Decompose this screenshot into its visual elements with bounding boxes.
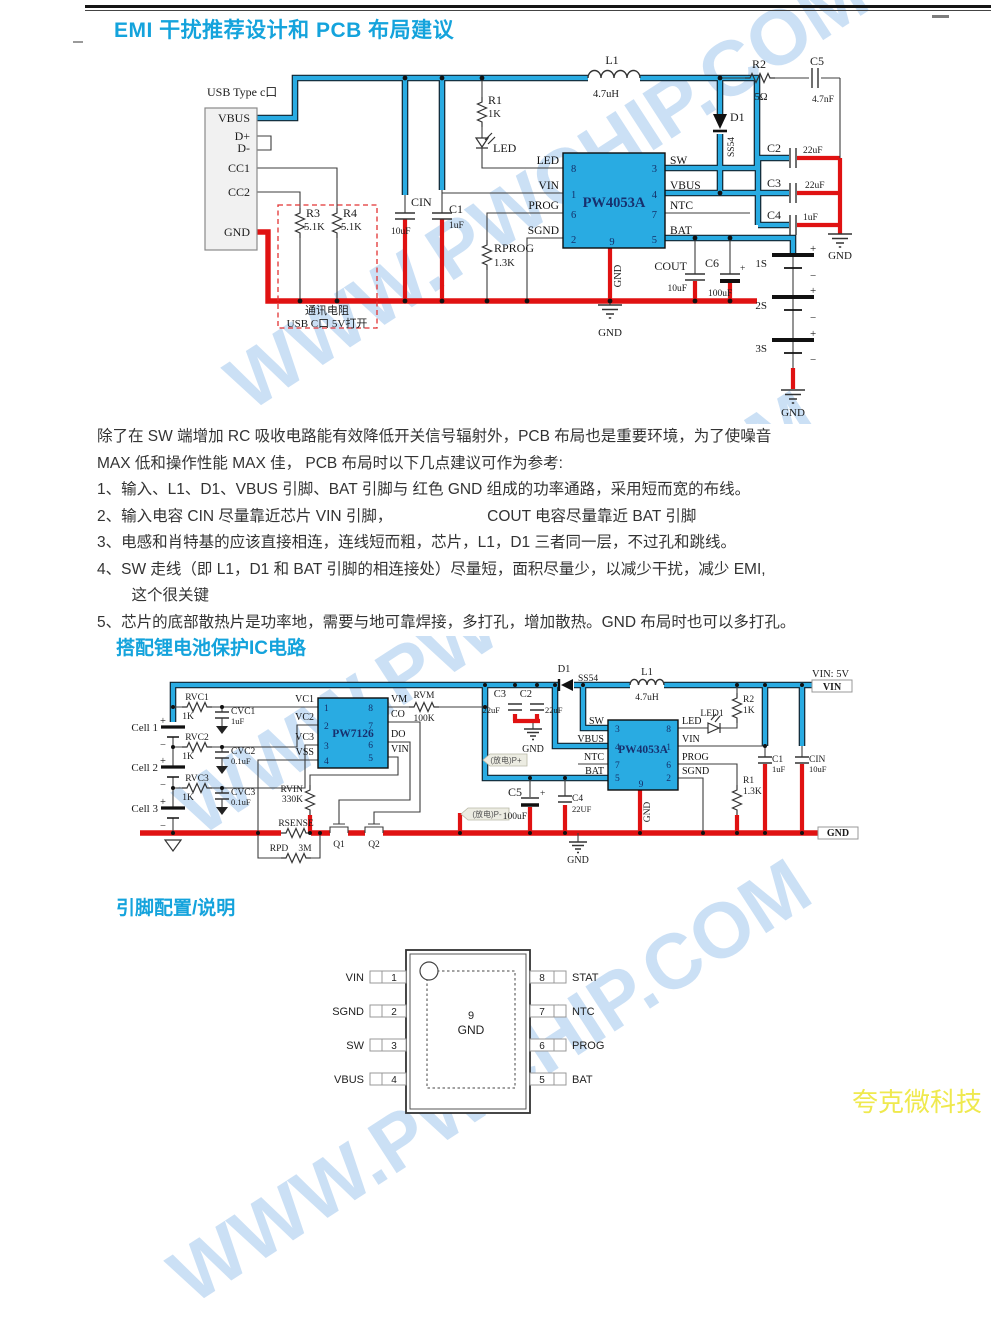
pin-label-prog-c2: PROG (682, 752, 709, 763)
pin-number-2: 2 (571, 235, 576, 246)
value-cout: 10uF (667, 284, 687, 294)
brand-logo-text: 夸克微科技 (852, 1082, 982, 1119)
pin9-gnd-rotated-c2: GND (643, 802, 653, 823)
value-r1: 1K (488, 109, 501, 120)
label-l1-c2: L1 (641, 667, 653, 678)
pin2-number: 2 (391, 1007, 397, 1018)
pin-label-led-c2: LED (682, 716, 701, 727)
pw4053a2-pin-3: 3 (615, 725, 620, 735)
value-r1-c2: 1.3K (743, 787, 762, 797)
top-border-line-thin (85, 10, 991, 11)
gnd-label-caps: GND (522, 744, 544, 755)
value-c6: 100uF (708, 289, 732, 299)
usb-pin-dminus: D- (237, 141, 250, 155)
value-c4: 1uF (803, 213, 818, 223)
pin-number-4: 4 (652, 190, 658, 201)
pw4053a2-pin-7: 7 (615, 761, 620, 771)
datasheet-page: { "header": { "title": "EMI 干扰推荐设计和 PCB … (0, 0, 991, 1115)
notes-item-2: 2、输入电容 CIN 尽量靠近芯片 VIN 引脚， COUT 电容尽量靠近 BA… (97, 504, 975, 531)
label-c1-c2: C1 (772, 755, 783, 765)
label-q1: Q1 (333, 840, 345, 850)
cell1-minus: − (160, 740, 166, 751)
cell2-plus: + (160, 756, 166, 767)
cell1-minus: − (810, 270, 816, 282)
pin1-label: VIN (346, 972, 364, 984)
label-r4: R4 (343, 206, 357, 220)
pin4-label: VBUS (334, 1074, 364, 1086)
pin-number-7: 7 (652, 210, 657, 221)
pin1-marker-circle (420, 962, 438, 980)
chip-pw4053a-2 (608, 720, 678, 790)
value-r3: 5.1K (304, 222, 325, 233)
pin2-label: SGND (332, 1006, 364, 1018)
notes-item-3: 3、电感和肖特基的应该直接相连，连线短而粗，芯片，L1，D1 三者同一层，不过孔… (97, 530, 975, 557)
pin-label-sgnd-c2: SGND (682, 766, 709, 777)
value-c4-c2: 22UF (572, 804, 592, 814)
label-c3-c2: C3 (494, 689, 506, 700)
c6-polarity-plus: + (740, 264, 745, 274)
vin-terminal-box (812, 680, 852, 692)
chip-name-pw4053a-2: PW4053A (618, 744, 669, 756)
battery-3s-label: 3S (755, 343, 767, 355)
pin-label-vbus-c2: VBUS (577, 734, 604, 745)
value-rpd: 3M (298, 844, 312, 854)
value-c2-c2: 22uF (545, 705, 563, 715)
label-cell3: Cell 3 (131, 803, 158, 815)
notes-item-5: 5、芯片的底部散热片是功率地，需要与地可靠焊接，多打孔，增加散热。GND 布局时… (97, 610, 975, 637)
section-title-pin-config: 引脚配置/说明 (116, 893, 235, 920)
page-title: EMI 干扰推荐设计和 PCB 布局建议 (114, 14, 454, 44)
gnd-terminal-label: GND (827, 828, 849, 839)
pin-label-bat-c2: BAT (585, 766, 604, 777)
cell1-plus: + (160, 716, 166, 727)
pin-number-5: 5 (652, 235, 657, 246)
label-cvc1: CVC1 (231, 707, 256, 717)
pin4-number: 4 (391, 1075, 397, 1086)
label-cin: CIN (411, 195, 432, 209)
label-c4: C4 (767, 208, 781, 222)
pin-row-left-4: 4 VBUS (334, 1073, 406, 1086)
pin3-number: 3 (391, 1041, 397, 1052)
value-r2-c2: 1K (743, 706, 755, 716)
gnd-label-rail-c2: GND (567, 855, 589, 866)
margin-dash-left (73, 41, 83, 43)
usb-pin-dplus: D+ (235, 129, 251, 143)
cell3-plus: + (160, 797, 166, 808)
watermark-diagonal-3: WWW.PWCHIP.COM (153, 840, 826, 1321)
value-cin-c2: 10uF (809, 764, 827, 774)
battery-2s-label: 2S (755, 300, 767, 312)
cell2-plus: + (810, 285, 816, 297)
c5-polarity-plus: + (540, 789, 545, 799)
value-c3-c2: 22uF (483, 705, 501, 715)
led1-indicator (708, 714, 720, 733)
pin-label-vin-c2: VIN (682, 734, 700, 745)
label-r1-c2: R1 (743, 776, 754, 786)
top-border-line (85, 5, 991, 8)
pw4053a2-pin-2: 2 (666, 774, 671, 784)
label-c4-c2: C4 (572, 794, 583, 804)
notes-item-4: 4、SW 走线（即 L1，D1 和 BAT 引脚的相连接处）尽量短，面积尽量少，… (97, 557, 975, 584)
discharge-p-plus-callout (483, 754, 527, 766)
label-rvc1: RVC1 (185, 693, 209, 703)
label-r2-c2: R2 (743, 695, 754, 705)
pw4053a2-pin-4: 4 (615, 743, 620, 753)
pw4053a2-pin-5: 5 (615, 774, 620, 784)
pin-label-bat: BAT (670, 225, 692, 237)
usb-title-label: USB Type c口 (207, 85, 277, 99)
margin-dash-right (932, 15, 949, 18)
pw4053a2-pin-9: 9 (639, 780, 644, 790)
discharge-p-minus-callout (461, 808, 509, 820)
notes-intro-line1: 除了在 SW 端增加 RC 吸收电路能有效降低开关信号辐射外，PCB 布局也是重… (97, 424, 975, 451)
label-c2-c2: C2 (520, 689, 532, 700)
label-cell2: Cell 2 (131, 762, 158, 774)
section-title-protection-circuit: 搭配锂电池保护IC电路 (116, 633, 306, 660)
mosfet-q1 (330, 823, 348, 833)
pin8-number: 8 (539, 973, 545, 984)
value-d1: SS54 (727, 137, 737, 157)
notes-item-1: 1、输入、L1、D1、VBUS 引脚、BAT 引脚与 红色 GND 组成的功率通… (97, 477, 975, 504)
pin-label-vin-pw7126: VIN (391, 744, 409, 755)
cell2-minus: − (810, 312, 816, 324)
label-l1: L1 (605, 53, 618, 67)
notes-intro-line2: MAX 低和操作性能 MAX 佳， PCB 布局时以下几点建议可作为参考: (97, 451, 975, 478)
label-d1-c2: D1 (558, 664, 571, 675)
gnd-terminal-box (818, 827, 858, 839)
value-c3: 22uF (805, 181, 825, 191)
discharge-p-minus-label: (放电)P- (472, 809, 502, 819)
label-r3: R3 (306, 206, 320, 220)
schottky-diode-d1-c2 (559, 679, 573, 691)
value-l1-c2: 4.7uH (635, 693, 659, 703)
usb-pin-cc2: CC2 (228, 185, 250, 199)
vin-terminal-label: VIN (823, 682, 842, 693)
thermal-pad-number: 9 (468, 1010, 474, 1022)
label-led: LED (493, 141, 517, 155)
value-d1-c2: SS54 (578, 674, 598, 684)
gnd-label-mid: GND (598, 327, 622, 339)
vin-5v-annotation: VIN: 5V (812, 669, 849, 680)
pin3-label: SW (346, 1040, 364, 1052)
led-indicator (476, 133, 495, 148)
pin-row-left-3: 3 SW (346, 1039, 406, 1052)
notes-item-4b: 这个很关键 (97, 583, 975, 610)
cell3-minus: − (160, 821, 166, 832)
pin-number-9: 9 (609, 237, 614, 248)
pin-row-left-2: 2 SGND (332, 1005, 406, 1018)
label-led1: LED1 (700, 709, 723, 719)
label-cout: COUT (654, 259, 687, 273)
usb-pin-gnd: GND (224, 225, 250, 239)
value-r4: 5.1K (341, 222, 362, 233)
mosfet-q2 (365, 823, 383, 833)
cell3-minus: − (810, 354, 816, 366)
label-rvc2: RVC2 (185, 733, 209, 743)
gnd-label-right: GND (828, 250, 852, 262)
battery-1s-label: 1S (755, 258, 767, 270)
usb-pin-vbus: VBUS (218, 111, 250, 125)
pcb-layout-notes: 除了在 SW 端增加 RC 吸收电路能有效降低开关信号辐射外，PCB 布局也是重… (97, 424, 975, 636)
value-c2: 22uF (803, 146, 823, 156)
pw4053a2-pin-6: 6 (666, 761, 671, 771)
label-c2: C2 (767, 141, 781, 155)
label-c6: C6 (705, 256, 719, 270)
label-cin-c2: CIN (809, 755, 826, 765)
usb-type-c-connector (205, 108, 257, 250)
pin-label-ntc: NTC (670, 200, 693, 212)
pw4053a2-pin-8: 8 (666, 725, 671, 735)
earth-triangle (165, 840, 181, 851)
label-c5-c2: C5 (508, 785, 522, 799)
label-cell1: Cell 1 (131, 722, 158, 734)
pin-label-sw-c2: SW (589, 716, 605, 727)
pw7126-pin-5: 5 (368, 754, 373, 764)
pin9-gnd-rotated: GND (613, 264, 624, 287)
discharge-p-plus-label: (放电)P+ (490, 755, 522, 765)
pin-label-vbus: VBUS (670, 180, 701, 192)
pw4053a2-pin-1: 1 (666, 743, 671, 753)
label-rpd: RPD (270, 844, 289, 854)
cell1-plus: + (810, 243, 816, 255)
pin-label-ntc-c2: NTC (584, 752, 604, 763)
pin1-number: 1 (391, 973, 397, 984)
watermark-diagonal-1: WWW.PWCHIP.COM (210, 0, 883, 429)
label-rsense: RSENSE (278, 819, 314, 829)
label-r1: R1 (488, 93, 502, 107)
value-rvc1: 1K (182, 712, 194, 722)
value-c5-c2: 100uF (503, 812, 527, 822)
label-c3: C3 (767, 176, 781, 190)
label-q2: Q2 (368, 840, 380, 850)
usb-pin-cc1: CC1 (228, 161, 250, 175)
value-c1-c2: 1uF (772, 764, 786, 774)
value-c5: 4.7nF (812, 95, 834, 105)
cell3-plus: + (810, 328, 816, 340)
pin-row-left-1: 1 VIN (346, 971, 406, 984)
